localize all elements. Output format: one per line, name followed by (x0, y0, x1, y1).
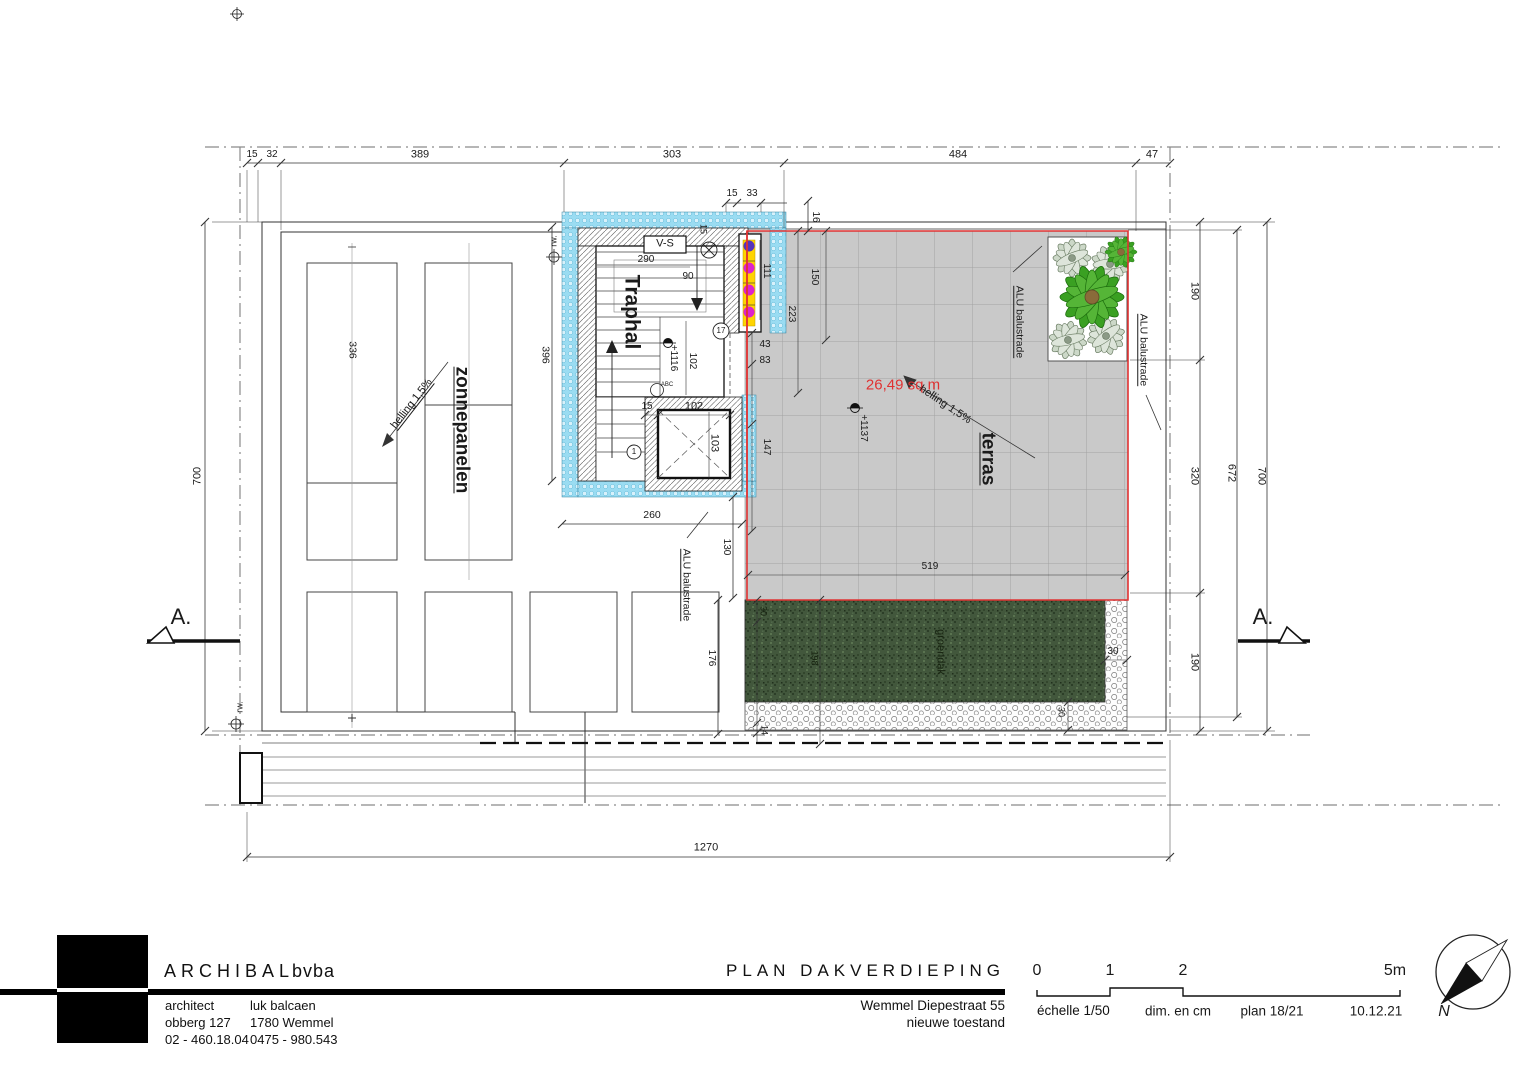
dim-top2-33: 33 (746, 189, 757, 199)
units-label: dim. en cm (1145, 1004, 1211, 1018)
balustrade-label-3: ALU balustrade (681, 549, 692, 621)
dim-83: 83 (759, 356, 770, 366)
dim-396: 396 (540, 346, 551, 364)
dim-176: 176 (706, 650, 716, 667)
dim-150: 150 (809, 269, 819, 286)
plan-drawing (0, 0, 1527, 1080)
dim-223: 223 (786, 306, 796, 323)
dim-15-wall: 15 (699, 224, 708, 234)
project-address: Wemmel Diepestraat 55 (860, 999, 1005, 1013)
dim-right-190a: 190 (1189, 282, 1200, 300)
dim-30-green-left: 30 (759, 606, 768, 616)
contact-phone: 02 - 460.18.04 (165, 1033, 249, 1046)
zone-label-groendak: groendak (935, 629, 946, 675)
company-suffix: bvba (292, 962, 335, 980)
scale-label: échelle 1/50 (1037, 1004, 1110, 1018)
section-label-left: A. (171, 606, 192, 628)
section-marker-left (147, 627, 240, 643)
section-label-right: A. (1253, 606, 1274, 628)
dim-90: 90 (682, 272, 693, 282)
zone-label-zonnepanelen: zonnepanelen (453, 367, 472, 494)
contact-city: 1780 Wemmel (250, 1016, 334, 1029)
dim-right-700: 700 (1256, 467, 1267, 485)
vs-label: V-S (656, 239, 674, 250)
dim-left-700: 700 (193, 467, 204, 485)
glass-block-strip (739, 234, 761, 332)
contact-architect: architect (165, 999, 214, 1012)
dim-lift-15: 15 (641, 402, 652, 412)
dim-260: 260 (643, 510, 661, 521)
level-stair: +1116 (668, 345, 678, 372)
circle-label-17: 17 (717, 327, 726, 335)
scalebar-2: 2 (1179, 963, 1188, 979)
dim-right-672: 672 (1226, 464, 1237, 482)
dim-130: 130 (721, 539, 731, 556)
dim-top2-15: 15 (726, 189, 737, 199)
plan-date: 10.12.21 (1350, 1004, 1403, 1018)
dim-30-bottom: 30 (1057, 707, 1066, 717)
company-name: ARCHIBAL (164, 962, 294, 980)
dim-top-15: 15 (246, 150, 257, 160)
dim-519: 519 (922, 562, 939, 572)
contact-mobile: 0475 - 980.543 (250, 1033, 337, 1046)
plan-title: PLAN DAKVERDIEPING (726, 962, 1005, 979)
abc-label: ABC (661, 382, 673, 388)
contact-name: luk balcaen (250, 999, 316, 1012)
dim-198: 198 (810, 650, 819, 665)
dim-147: 147 (761, 439, 771, 456)
dim-bottom-1270: 1270 (694, 843, 718, 854)
dim-top-303: 303 (663, 150, 681, 161)
dim-290: 290 (638, 255, 655, 265)
room-label-terras: terras (979, 433, 998, 486)
rw-label-top: rw. (550, 235, 559, 247)
dim-right-190b: 190 (1189, 653, 1200, 671)
dim-lift-103: 103 (709, 434, 720, 452)
dim-right-320: 320 (1189, 467, 1200, 485)
dim-43: 43 (759, 340, 770, 350)
dim-30-right: 30 (1107, 647, 1118, 657)
circle-label-1: 1 (632, 448, 636, 456)
north-compass-icon (1436, 935, 1510, 1009)
dim-top-484: 484 (949, 150, 967, 161)
level-terrace: +1137 (858, 414, 868, 441)
dim-top-32: 32 (266, 150, 277, 160)
scalebar-1: 1 (1106, 963, 1115, 979)
scale-bar (1037, 988, 1400, 996)
dim-111: 111 (761, 263, 771, 278)
rw-label-bottom: rw. (236, 701, 245, 713)
dim-14: 14 (760, 725, 769, 735)
scalebar-5m: 5m (1384, 963, 1406, 979)
contact-street: obberg 127 (165, 1016, 231, 1029)
scalebar-0: 0 (1033, 963, 1042, 979)
dim-336: 336 (347, 341, 358, 359)
dim-102v: 102 (687, 353, 697, 370)
balustrade-label-1: ALU balustrade (1014, 286, 1025, 358)
project-state: nieuwe toestand (907, 1016, 1005, 1030)
dim-top-47: 47 (1146, 150, 1158, 161)
room-label-traphal: Traphal (622, 275, 643, 350)
section-marker-right (1238, 627, 1310, 643)
lower-roof-band (240, 743, 1166, 803)
dim-top-389: 389 (411, 150, 429, 161)
dim-lift-102: 102 (685, 402, 703, 413)
balustrade-label-2: ALU balustrade (1138, 314, 1149, 386)
dim-16: 16 (810, 211, 820, 222)
plan-number: plan 18/21 (1240, 1004, 1303, 1018)
north-label: N (1438, 1004, 1450, 1020)
floor-plan-sheet: 15 32 389 303 484 47 15 33 16 700 190 32… (0, 0, 1527, 1080)
